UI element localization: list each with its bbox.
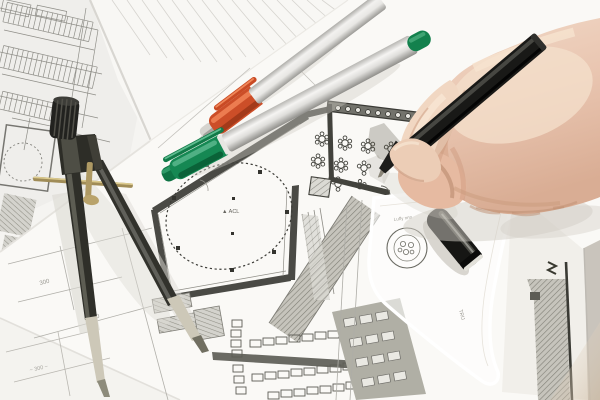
svg-text:▲ ACL: ▲ ACL (222, 209, 239, 215)
